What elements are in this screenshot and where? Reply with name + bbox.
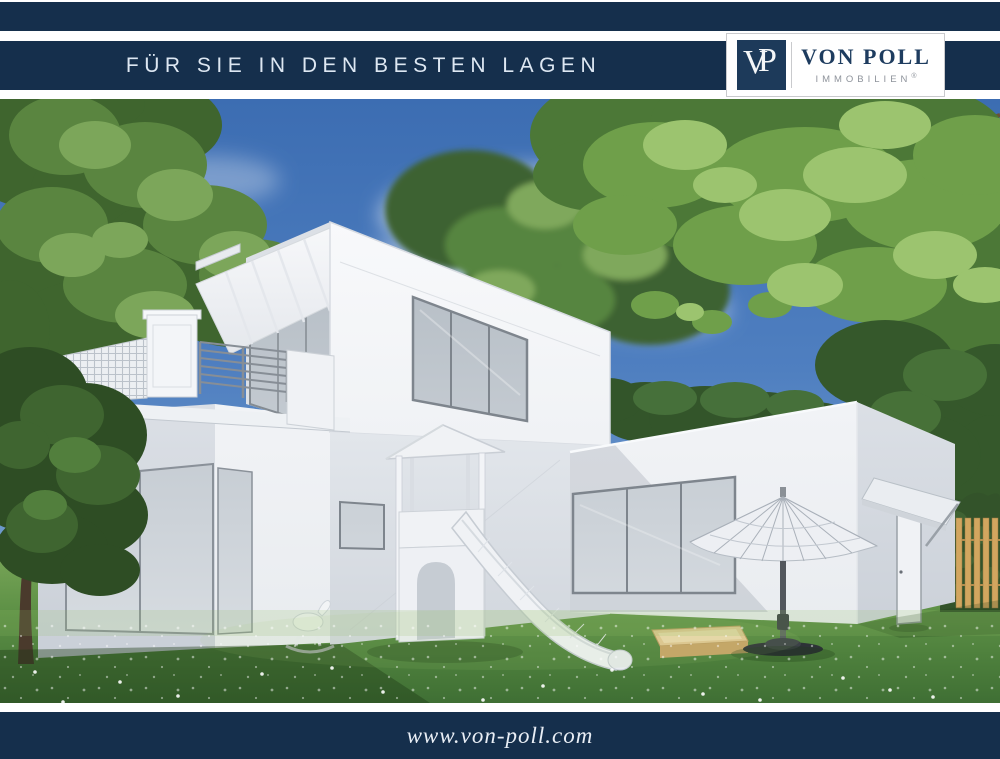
page: FÜR SIE IN DEN BESTEN LAGEN V P VON POLL… — [0, 0, 1000, 759]
logo-text: VON POLL IMMOBILIEN® — [792, 44, 944, 85]
property-photo — [0, 99, 1000, 703]
brand-name: VON POLL — [792, 44, 940, 70]
parapet-pillar — [147, 315, 197, 397]
monogram-p: P — [758, 44, 777, 78]
garden-photo-illustration — [0, 99, 1000, 703]
daisies — [0, 622, 1000, 703]
tagline-wrap: FÜR SIE IN DEN BESTEN LAGEN — [0, 41, 727, 90]
small-window — [340, 502, 384, 549]
footer-url: www.von-poll.com — [407, 723, 594, 749]
vp-monogram-icon: V P — [737, 40, 786, 90]
tagline: FÜR SIE IN DEN BESTEN LAGEN — [126, 54, 601, 78]
footer-bar: www.von-poll.com — [0, 712, 1000, 759]
brand-subtitle: IMMOBILIEN® — [792, 73, 940, 85]
von-poll-logo: V P VON POLL IMMOBILIEN® — [726, 33, 945, 97]
entrance-door — [897, 506, 921, 624]
top-accent-bar — [0, 2, 1000, 31]
registered-mark: ® — [911, 73, 916, 80]
